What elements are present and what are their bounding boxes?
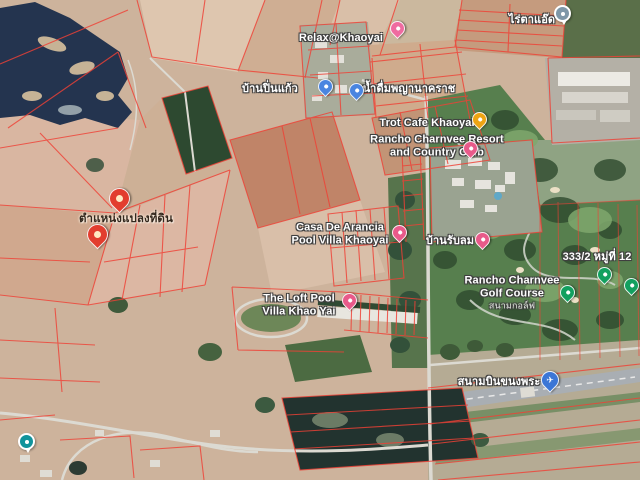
label-rancho-charnvee-golf-course-line-1: Rancho Charnvee [464, 274, 559, 287]
label-rai-ta-aed[interactable]: ไร่ตาแอ๊ด [509, 14, 555, 27]
label-khanong-phra-airfield-line-1: สนามบินขนงพระ [458, 376, 541, 389]
label-relax-khaoyai-line-1: Relax@Khaoyai [299, 32, 383, 45]
label-the-loft-pool-villa-line-1: The Loft Pool [262, 293, 335, 306]
label-casa-de-arancia-line-2: Pool Villa Khaoyai [292, 234, 389, 247]
label-rancho-charnvee-resort-line-1: Rancho Charnvee Resort [370, 134, 504, 147]
label-rai-ta-aed-line-1: ไร่ตาแอ๊ด [509, 14, 555, 27]
marker-rai-ta-aed-circle-icon [554, 5, 571, 22]
label-address-333-2[interactable]: 333/2 หมู่ที่ 12 [563, 251, 632, 264]
label-trot-cafe-khaoyai[interactable]: Trot Cafe Khaoyai [379, 117, 474, 130]
label-rancho-charnvee-golf-course-sub: สนามกอล์ฟ [464, 299, 559, 312]
label-casa-de-arancia[interactable]: Casa De AranciaPool Villa Khaoyai [292, 222, 389, 247]
label-address-333-2-line-1: 333/2 หมู่ที่ 12 [563, 251, 632, 264]
label-ban-rub-lom-line-1: บ้านรับลม [426, 235, 474, 248]
label-ban-pin-kaew[interactable]: บ้านปิ่นแก้ว [242, 83, 298, 96]
label-rancho-charnvee-golf-course-line-2: Golf Course [464, 287, 559, 300]
label-nam-duem-phaya-nakharat-line-1: น้ำดื่มพญานาคราช [363, 83, 456, 96]
label-rancho-charnvee-golf-course[interactable]: Rancho CharnveeGolf Courseสนามกอล์ฟ [464, 274, 559, 312]
marker-lodging-sw-circle-icon [18, 433, 35, 450]
label-relax-khaoyai[interactable]: Relax@Khaoyai [299, 32, 383, 45]
label-ban-rub-lom[interactable]: บ้านรับลม [426, 235, 474, 248]
satellite-map-view[interactable]: ไร่ตาแอ๊ดRelax@Khaoyaiบ้านปิ่นแก้วน้ำดื่… [0, 0, 640, 480]
label-khanong-phra-airfield[interactable]: สนามบินขนงพระ [458, 376, 541, 389]
label-nam-duem-phaya-nakharat[interactable]: น้ำดื่มพญานาคราช [363, 83, 456, 96]
label-trot-cafe-khaoyai-line-1: Trot Cafe Khaoyai [379, 117, 474, 130]
label-the-loft-pool-villa-line-2: Villa Khao Yai [262, 305, 335, 318]
label-ban-pin-kaew-line-1: บ้านปิ่นแก้ว [242, 83, 298, 96]
label-the-loft-pool-villa[interactable]: The Loft PoolVilla Khao Yai [262, 293, 335, 318]
label-casa-de-arancia-line-1: Casa De Arancia [292, 222, 389, 235]
airplane-icon: ✈ [542, 372, 558, 388]
label-rancho-charnvee-resort[interactable]: Rancho Charnvee Resortand Country Club [370, 134, 504, 159]
label-rancho-charnvee-resort-line-2: and Country Club [370, 146, 504, 159]
